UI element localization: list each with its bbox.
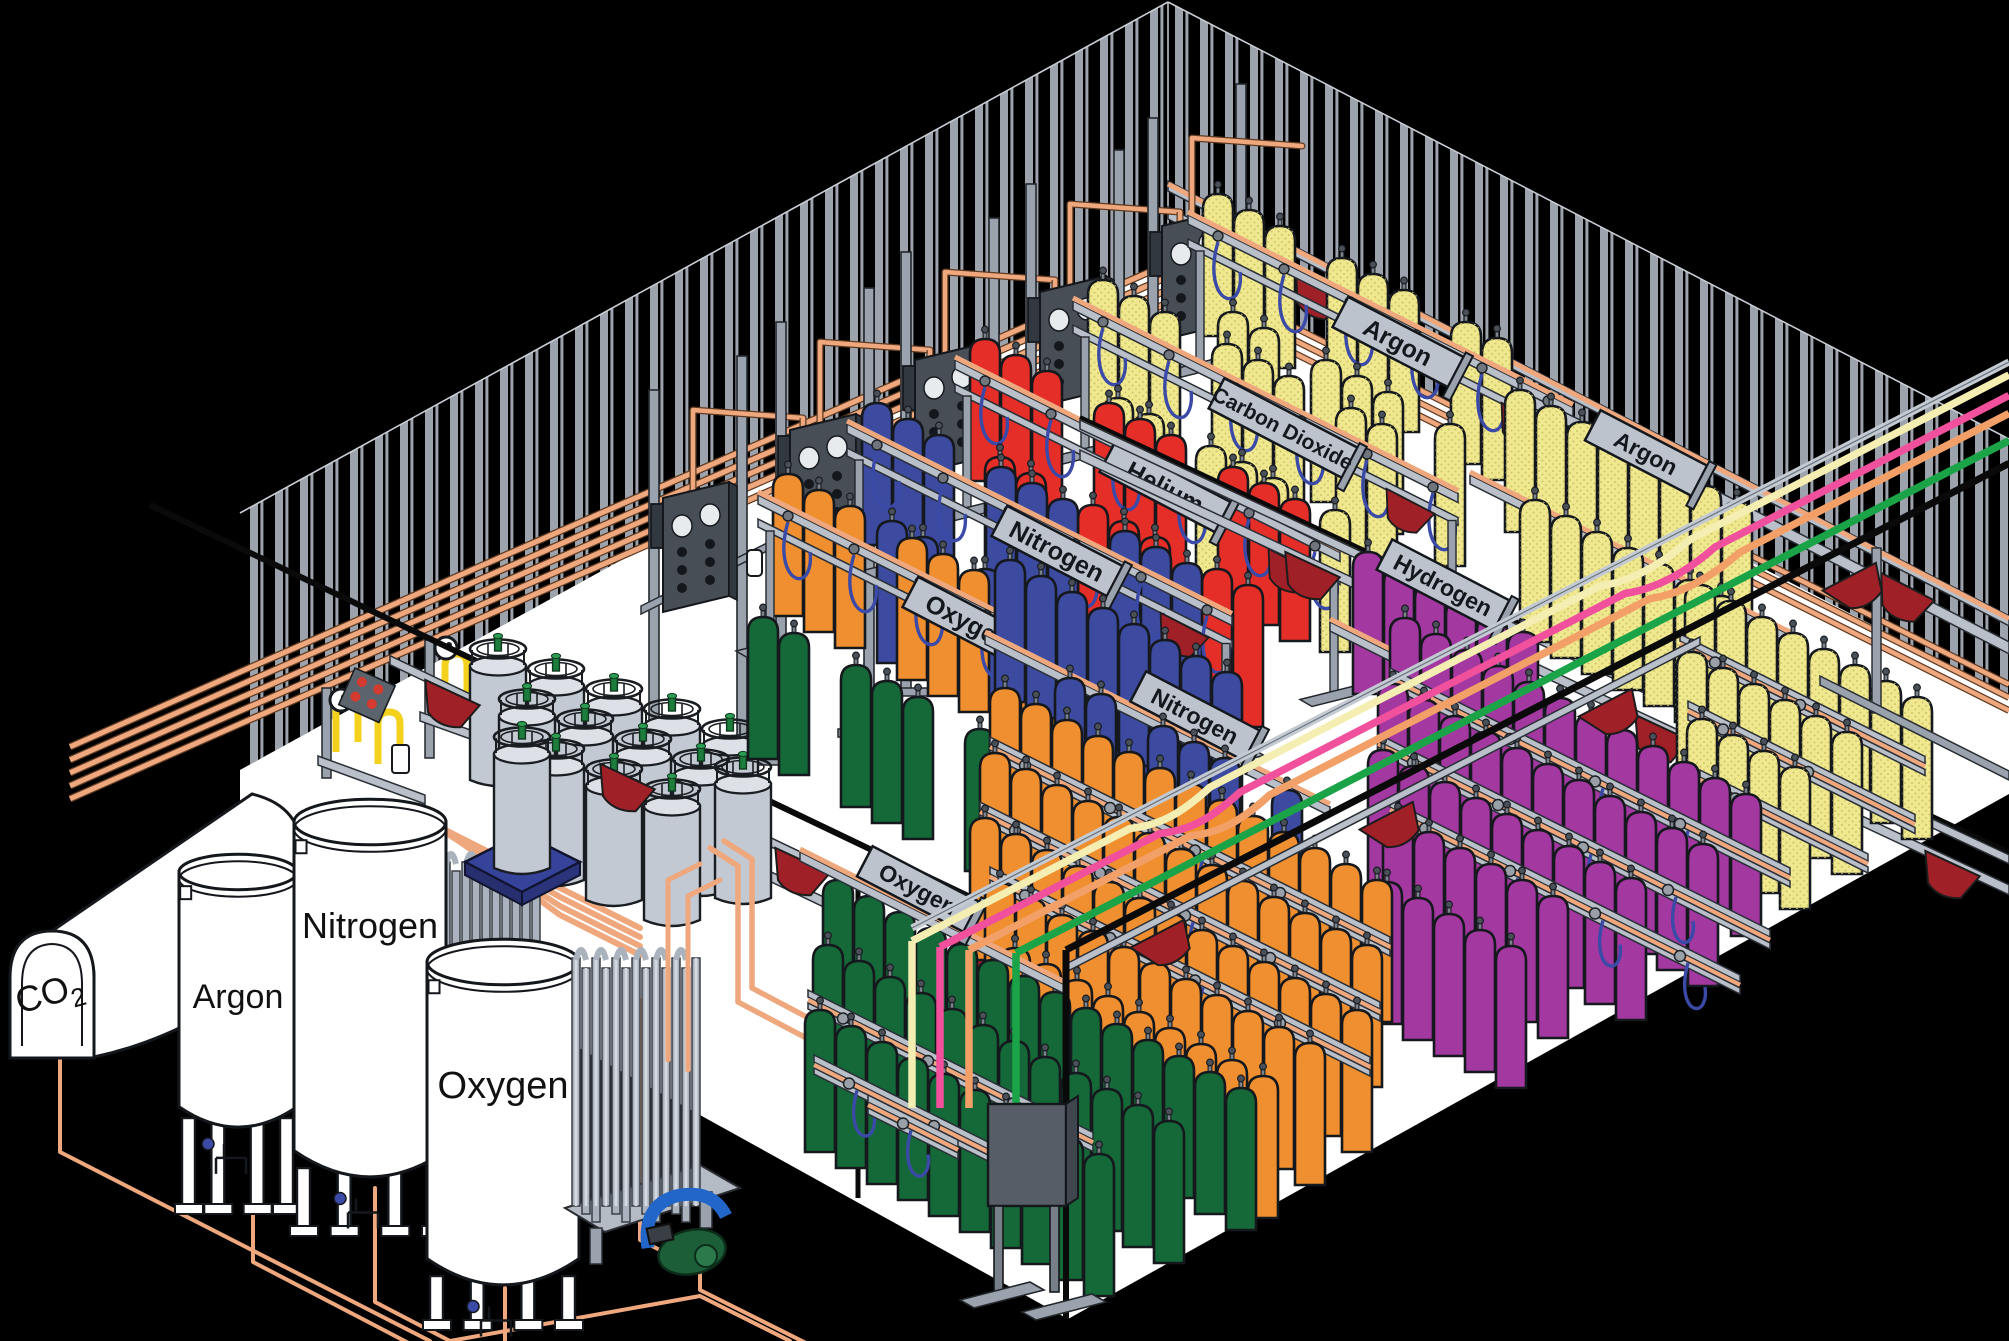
svg-text:Argon: Argon xyxy=(193,978,284,1016)
svg-text:Nitrogen: Nitrogen xyxy=(302,905,438,946)
svg-text:Oxygen: Oxygen xyxy=(438,1065,569,1107)
